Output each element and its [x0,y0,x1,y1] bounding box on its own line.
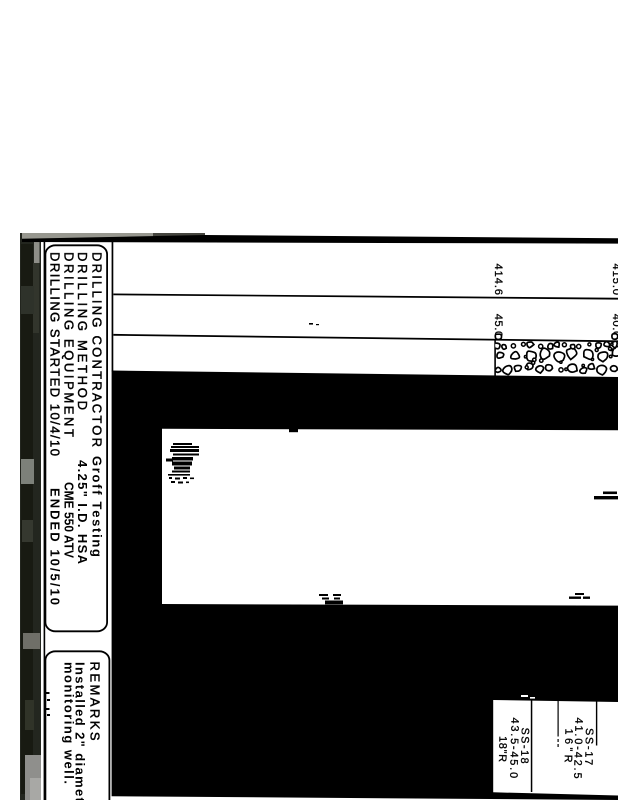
svg-text:ENDED 10/5/10: ENDED 10/5/10 [47,488,62,605]
svg-text:CME 550 ATV: CME 550 ATV [62,482,77,558]
svg-text:415.0: 415.0 [610,264,618,296]
svg-text:DRILLING EQUIPMENT: DRILLING EQUIPMENT [62,252,77,437]
svg-text:414.6: 414.6 [492,264,504,296]
svg-text:DRILLING CONTRACTOR: DRILLING CONTRACTOR [90,252,105,447]
svg-text:DRILLING STARTED 10/4/10: DRILLING STARTED 10/4/10 [47,252,62,456]
svg-text:REMARKS: REMARKS [88,662,103,741]
svg-text:monitoring well.: monitoring well. [62,662,77,784]
svg-text:Groff Testing: Groff Testing [90,456,105,557]
svg-text:18"R: 18"R [496,736,509,762]
